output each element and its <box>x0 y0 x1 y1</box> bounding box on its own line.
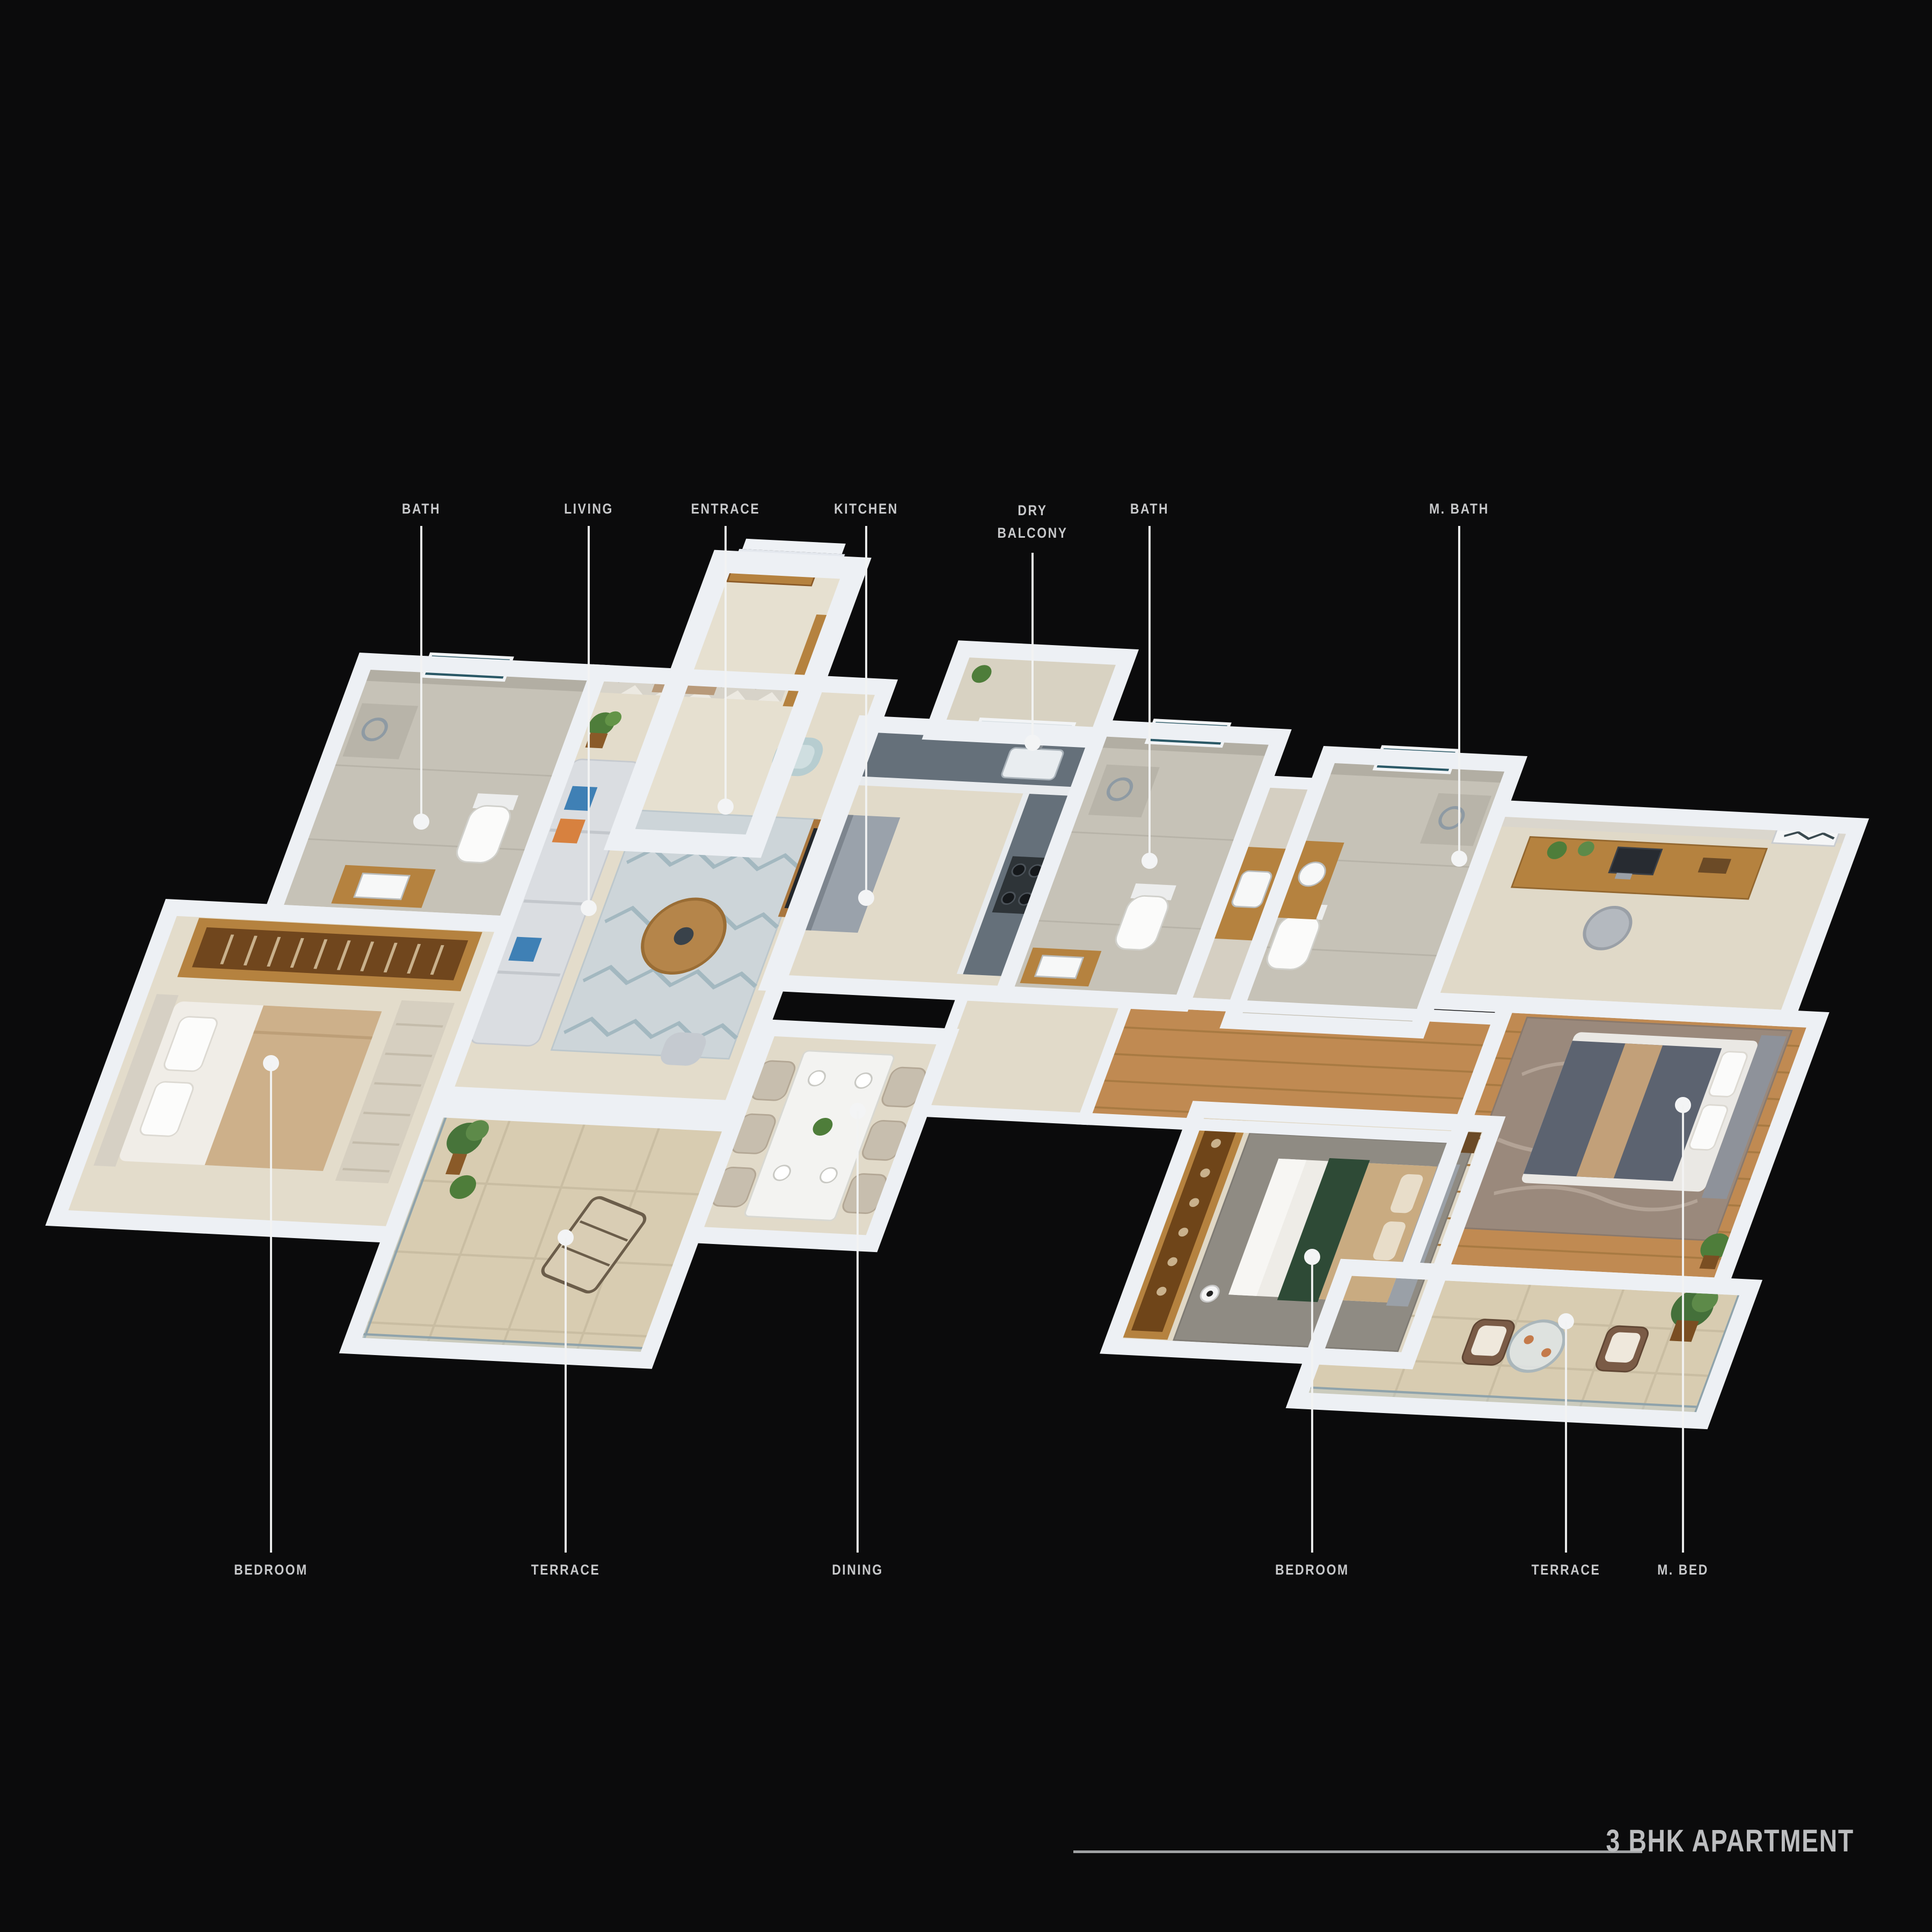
leader-line <box>1565 1321 1567 1553</box>
leader-line <box>588 526 590 908</box>
leader-line <box>724 526 727 807</box>
leader-line <box>865 526 867 898</box>
callout-label: LIVING <box>564 501 613 517</box>
leader-line <box>1148 526 1151 861</box>
leader-dot <box>858 890 874 906</box>
leader-line <box>565 1238 567 1553</box>
callout-label: M. BED <box>1657 1562 1709 1578</box>
floor-plan-render <box>0 0 1932 1932</box>
page-title: 3 BHK APARTMENT <box>1606 1826 1854 1857</box>
callout-label: BATH <box>402 501 441 517</box>
callout-label: TERRACE <box>531 1562 601 1578</box>
leader-line <box>1311 1257 1313 1553</box>
title-rule <box>1073 1850 1642 1853</box>
page: BATH LIVING ENTRACE KITCHEN DRY BALCONY … <box>0 0 1932 1932</box>
callout-label: BEDROOM <box>1275 1562 1349 1578</box>
callout-label: TERRACE <box>1532 1562 1601 1578</box>
leader-dot <box>581 900 597 916</box>
leader-line <box>1458 526 1460 859</box>
leader-line <box>1682 1105 1684 1553</box>
leader-dot <box>1141 853 1158 869</box>
leader-dot <box>718 799 734 815</box>
callout-label: BEDROOM <box>234 1562 308 1578</box>
leader-dot <box>413 814 429 830</box>
leader-dot <box>1451 851 1467 867</box>
leader-line <box>857 1111 859 1553</box>
leader-dot <box>1024 735 1041 751</box>
callout-label: M. BATH <box>1429 501 1489 517</box>
callout-label: BATH <box>1130 501 1169 517</box>
callout-label: DRY BALCONY <box>985 499 1081 544</box>
callout-label: ENTRACE <box>691 501 760 517</box>
leader-line <box>420 526 422 822</box>
callout-label: KITCHEN <box>834 501 898 517</box>
callout-label: DINING <box>832 1562 883 1578</box>
leader-line <box>270 1063 272 1553</box>
leader-line <box>1031 553 1034 743</box>
